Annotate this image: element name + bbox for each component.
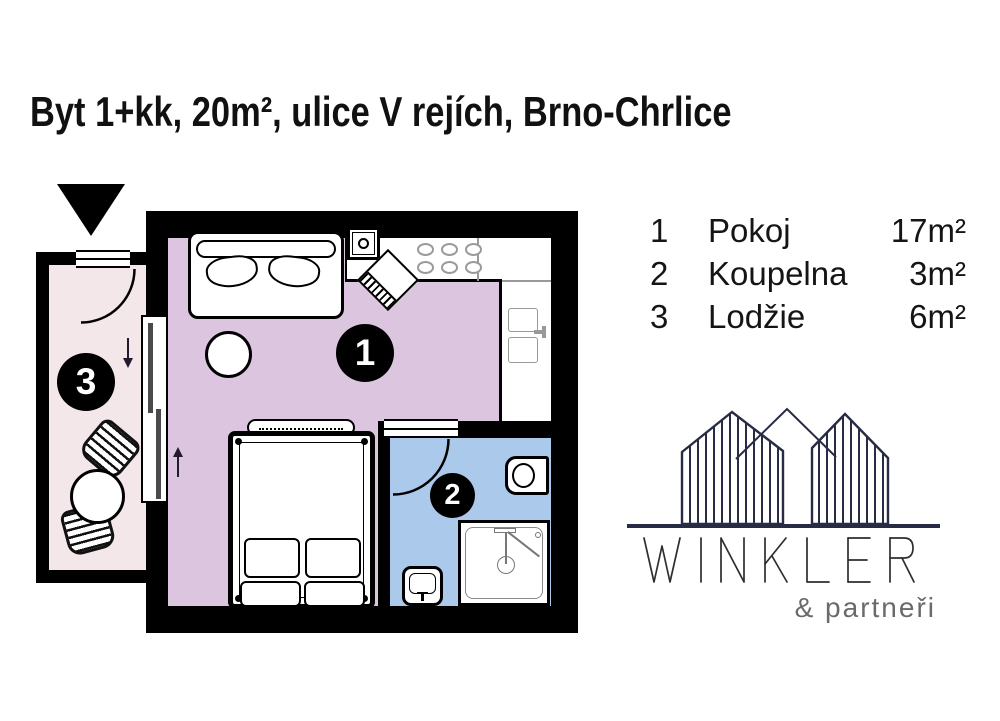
loggia-door-frame (76, 250, 130, 268)
bathroom-number-badge: 2 (430, 473, 475, 518)
bed-cushion (240, 581, 301, 607)
toilet-icon (505, 456, 549, 495)
logo-subtitle: & partneři (640, 592, 936, 624)
room1-floor-edge-v (499, 279, 502, 421)
legend-row-loggia: 3 Lodžie 6m² (650, 298, 966, 341)
bed-cushion (304, 581, 365, 607)
legend-number: 2 (650, 255, 708, 293)
legend-room-area: 3m² (909, 255, 966, 293)
loggia-door-swing-arc (80, 268, 136, 324)
bathroom-wall-left (378, 421, 390, 606)
legend-row-bathroom: 2 Koupelna 3m² (650, 255, 966, 298)
legend-room-area: 6m² (909, 298, 966, 336)
arrow-up-icon (170, 447, 186, 479)
sink-icon (402, 566, 443, 606)
legend-room-name: Koupelna (708, 255, 909, 293)
counter-edge-line (502, 280, 551, 282)
room-legend: 1 Pokoj 17m² 2 Koupelna 3m² 3 Lodžie 6m² (650, 212, 966, 341)
bed (228, 431, 375, 609)
houses-logo-icon (640, 402, 940, 530)
legend-number: 3 (650, 298, 708, 336)
bed-cushion (305, 538, 361, 578)
bed-cushion (244, 538, 300, 578)
logo-baseline (627, 524, 940, 528)
bathroom-door-frame (384, 419, 458, 438)
legend-room-name: Lodžie (708, 298, 909, 336)
shower-icon (458, 520, 550, 606)
legend-row-room1: 1 Pokoj 17m² (650, 212, 966, 255)
entrance-arrow-icon (57, 184, 125, 236)
legend-room-name: Pokoj (708, 212, 891, 250)
washing-machine-icon (347, 227, 380, 260)
arrow-down-icon (120, 336, 136, 368)
side-table (205, 331, 252, 378)
legend-room-area: 17m² (891, 212, 966, 250)
legend-number: 1 (650, 212, 708, 250)
logo-wordmark (642, 536, 938, 584)
flat-listing-floorplan-page: Byt 1+kk, 20m², ulice V rejích, Brno-Chr… (0, 0, 1000, 721)
floor-plan: 1 2 (0, 0, 600, 721)
loggia-number-badge: 3 (57, 353, 115, 411)
balcony-table (70, 469, 125, 524)
window-loggia (141, 315, 168, 503)
room1-number-badge: 1 (336, 324, 394, 382)
